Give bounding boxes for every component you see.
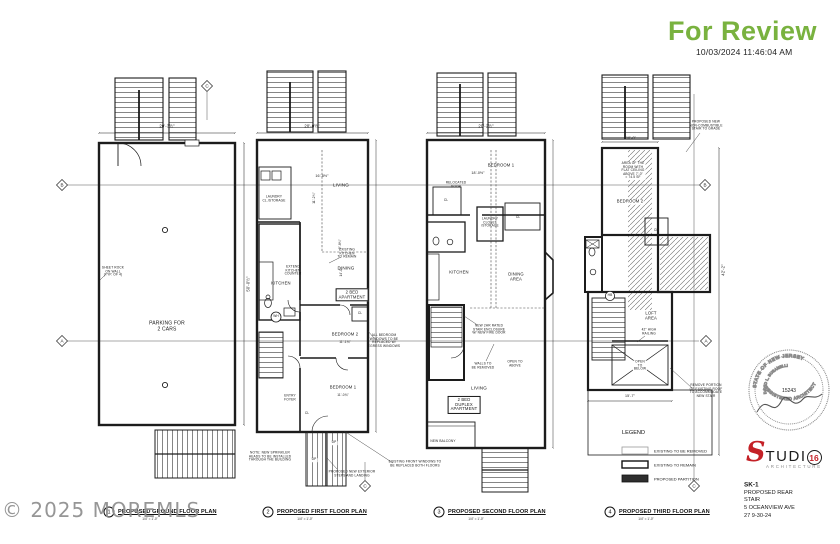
note-flat-ceiling: AREA OF THE ROOM WITH FLAT CEILING ABOVE… bbox=[621, 162, 646, 180]
dim-plan2-top: 20'-0½" bbox=[304, 125, 319, 130]
legend-item-removed: EXISTING TO BE REMOVED bbox=[654, 449, 707, 454]
dim-plan1-right: 50'-0½" bbox=[247, 276, 252, 291]
review-timestamp: 10/03/2024 11:46:04 AM bbox=[696, 47, 792, 57]
dim-living-h: 11'-2¾" bbox=[313, 192, 317, 204]
svg-text:B: B bbox=[703, 183, 706, 188]
note-egress-windows: ALL BEDROOM WINDOWS TO BE REPLACED W/ EG… bbox=[368, 334, 400, 348]
unit-tag-duplex: 2 BED DUPLEX APARTMENT bbox=[448, 396, 481, 414]
project-number-date: 27 9-30-24 bbox=[744, 513, 771, 519]
note-kitchen-remain: EXISTING KITCHEN TO REMAIN bbox=[337, 249, 356, 260]
room-label-living-2: LIVING bbox=[471, 385, 487, 390]
note-walls-removed: WALLS TO BE REMOVED bbox=[472, 362, 495, 369]
dim-bedroom-w: 18'-0½" bbox=[471, 171, 484, 175]
plan-title-third: PROPOSED THIRD FLOOR PLAN bbox=[619, 509, 710, 515]
room-label-kitchen-2: KITCHEN bbox=[449, 271, 468, 276]
architectural-drawing-sheet: C B A B A C C bbox=[0, 0, 840, 544]
plan-scale-second: 1/4" = 1'-0" bbox=[468, 517, 484, 521]
closet-label-2a: CL bbox=[444, 199, 448, 203]
wh-label: WH bbox=[273, 315, 279, 319]
note-extend-counter: EXTEND KITCHEN COUNTER bbox=[285, 266, 302, 277]
unit-tag-2bed-apartment: 2 BED APARTMENT bbox=[336, 288, 369, 301]
up-label-2: UP bbox=[331, 441, 338, 445]
legend-item-proposed: PROPOSED PARTITION bbox=[654, 477, 699, 482]
dim-plan1-top: 20'-3½" bbox=[159, 125, 174, 130]
plan-number-3: 3 bbox=[434, 507, 445, 518]
room-label-bedroom2-3: BEDROOM 2 bbox=[616, 200, 644, 205]
legend-swatches bbox=[622, 447, 648, 482]
room-label-parking: PARKING FOR 2 CARS bbox=[149, 321, 185, 332]
grid-bubble: C bbox=[360, 481, 371, 492]
architect-seal: STATE OF NEW JERSEY DAVID L. BUSANELLI R… bbox=[749, 350, 829, 430]
plan-title-first: PROPOSED FIRST FLOOR PLAN bbox=[277, 509, 367, 515]
room-label-bedroom1-2: BEDROOM 1 bbox=[488, 164, 514, 169]
plan-number-2: 2 bbox=[263, 507, 274, 518]
logo-16-badge: 16 bbox=[807, 450, 822, 465]
note-front-windows: EXISTING FRONT WINDOWS TO BE REPLACED BO… bbox=[389, 460, 442, 467]
note-open-above: OPEN TO ABOVE bbox=[507, 360, 522, 367]
closet-label-1a: CL bbox=[358, 312, 362, 316]
mls-watermark: © 2025 MOREMLS bbox=[2, 498, 200, 522]
room-label-laundry-2: LAUNDRY CLOSET /STORAGE bbox=[481, 218, 499, 229]
logo-tagline: ARCHITECTURE bbox=[766, 464, 822, 469]
label-new-balcony: NEW BALCONY bbox=[430, 440, 455, 444]
for-review-stamp: For Review bbox=[668, 16, 817, 47]
room-label-bedroom1-1: BEDROOM 1 bbox=[330, 386, 356, 391]
grid-bubble: C bbox=[689, 481, 700, 492]
room-label-living-1: LIVING bbox=[333, 182, 349, 187]
note-remove-roof: REMOVE PORTION OF EXISTING ROOF TO ACCOM… bbox=[690, 384, 723, 398]
dim-plan4-bottom: 15'-7" bbox=[625, 394, 635, 398]
grid-bubble: A bbox=[701, 336, 712, 347]
note-stair-enclosure: NEW 2HR RATED STAIR ENCLOSURE W/ NEW FIR… bbox=[471, 325, 506, 336]
closet-label-2b: CL bbox=[516, 216, 520, 220]
dim-bedroom2-1: 11'-1¾" bbox=[339, 341, 351, 345]
grid-bubble: A bbox=[57, 336, 68, 347]
room-label-dining-2: DINING AREA bbox=[508, 272, 524, 281]
plan-second-linework bbox=[427, 73, 553, 492]
svg-text:B: B bbox=[60, 183, 63, 188]
note-railing: 42" HIGH RAILING bbox=[641, 328, 658, 335]
sheet-number: SK-1 bbox=[744, 482, 759, 489]
svg-text:STATE OF NEW JERSEY: STATE OF NEW JERSEY bbox=[752, 353, 805, 388]
note-relocated-door: RELOCATED DOOR bbox=[446, 181, 467, 188]
closet-label-3: CL bbox=[654, 229, 658, 233]
legend-title: LEGEND bbox=[622, 430, 645, 436]
plan-number-4: 4 bbox=[605, 507, 616, 518]
note-new-steps: PROPOSED NEW EXTERIOR STEPS AND LANDING bbox=[329, 470, 376, 477]
up-label-1: UP bbox=[311, 458, 318, 462]
logo-s-glyph: S bbox=[746, 440, 766, 466]
plan-title-second: PROPOSED SECOND FLOOR PLAN bbox=[448, 509, 546, 515]
dim-living-w: 16'-8½" bbox=[315, 174, 328, 178]
plan-ground-linework bbox=[99, 78, 244, 478]
room-label-loft: LOFT AREA bbox=[645, 311, 657, 320]
legend-item-remain: EXISTING TO REMAIN bbox=[654, 463, 696, 468]
project-address: 5 OCEANVIEW AVE bbox=[744, 505, 795, 511]
plan-scale-first: 1/4" = 1'-0" bbox=[297, 517, 313, 521]
dim-plan4-right: 42'-2" bbox=[722, 264, 727, 276]
note-new-rear-stair: PROPOSED NEW NON-COMBUSTIBLE STAIR TO GR… bbox=[689, 121, 722, 132]
studio16-logo: S TUDI 16 bbox=[746, 436, 822, 466]
dim-plan4-top: 10'-0" bbox=[626, 136, 636, 140]
sheet-title-line1: PROPOSED REAR bbox=[744, 490, 793, 496]
label-open-below: OPEN TO BELOW bbox=[633, 361, 647, 372]
dim-plan3-top: 20'-2½" bbox=[478, 125, 493, 130]
sheet-title-line2: STAIR bbox=[744, 497, 760, 503]
room-label-laundry-1: LAUNDRY CL./STORAGE bbox=[262, 195, 285, 202]
grid-bubble: B bbox=[57, 180, 68, 191]
room-label-bedroom2-1: BEDROOM 2 bbox=[332, 333, 358, 338]
dim-bedroom1-1: 11'-0¾" bbox=[337, 394, 349, 398]
hb-label: HB bbox=[608, 294, 613, 298]
grid-lines bbox=[66, 92, 699, 480]
note-sheetrock: SHEET ROCK ON WALL (TYP. OF 4) bbox=[102, 267, 124, 278]
grid-bubble: C bbox=[202, 81, 213, 92]
room-label-entry: ENTRY FOYER bbox=[284, 394, 296, 401]
plan-scale-third: 1/4" = 1'-0" bbox=[638, 517, 654, 521]
room-label-kitchen-1: KITCHEN bbox=[271, 282, 290, 287]
plan-first-linework bbox=[257, 71, 376, 486]
note-sprinkler: NOTE: NEW SPRINKLER HEADS TO BE INSTALLE… bbox=[249, 452, 291, 463]
dim-dining-h: 14'-0" bbox=[340, 267, 344, 276]
seal-license-number: 15243 bbox=[782, 388, 796, 394]
grid-bubble: B bbox=[700, 180, 711, 191]
closet-label-1b: CL bbox=[305, 412, 309, 416]
